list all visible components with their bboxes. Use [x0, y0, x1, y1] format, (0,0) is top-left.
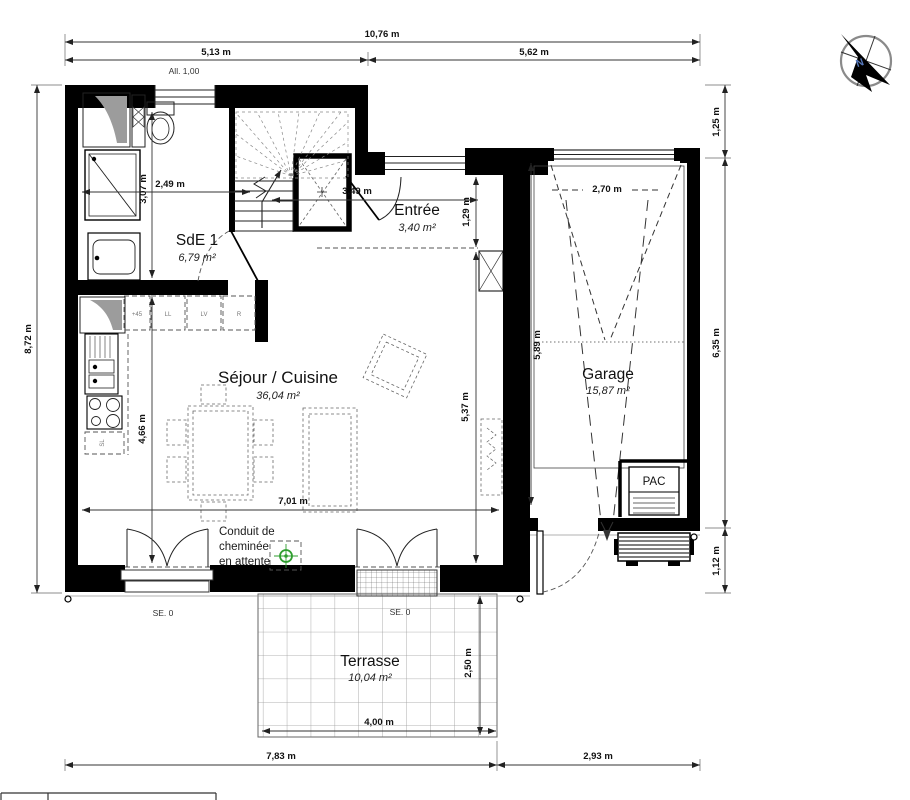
chimney-label-line2: cheminée: [219, 541, 269, 553]
dim-top-left: 5,13 m: [201, 47, 231, 58]
dim-sejour-width: 7,01 m: [278, 496, 308, 507]
garage-service-door: [537, 531, 599, 594]
dim-sde-width: 2,49 m: [155, 179, 185, 190]
dim-entree-width: 3,49 m: [342, 186, 372, 197]
dim-sejour-height: 5,37 m: [460, 392, 471, 422]
washbasin-icon: [88, 233, 140, 280]
console-unit: [481, 419, 502, 495]
french-door-terrace: [355, 529, 440, 596]
room-entree-area: 3,40 m²: [398, 222, 436, 234]
french-door-left: [121, 529, 213, 592]
dim-right-bottom: 1,12 m: [711, 546, 722, 576]
room-terrasse-name: Terrasse: [340, 653, 399, 670]
floor-plan: N 10,76 m 5,13 m 5,62 m 8,72 m 1,25 m 6,…: [0, 0, 910, 800]
pac-label: PAC: [643, 476, 666, 488]
room-sde-area: 6,79 m²: [178, 252, 216, 264]
chimney-label-line1: Conduit de: [219, 526, 275, 538]
dim-garage-depth: 5,89 m: [532, 330, 543, 360]
room-garage-area: 15,87 m²: [586, 385, 630, 397]
staircase: [234, 112, 348, 232]
room-terrasse-area: 10,04 m²: [348, 672, 392, 684]
legend-table-fragment: [1, 793, 216, 800]
room-sejour-name: Séjour / Cuisine: [218, 368, 338, 387]
kitchen-unit-5-label: SL: [100, 439, 106, 447]
duct-shaft: [479, 251, 503, 291]
room-sde-name: SdE 1: [176, 232, 218, 249]
threshold-terrace-label: SE. 0: [390, 607, 411, 617]
chimney-label-line3: en attente: [219, 556, 270, 568]
dining-table: [167, 385, 273, 521]
toilet-icon: [147, 102, 174, 144]
dim-top-total: 10,76 m: [365, 29, 400, 40]
armchair: [363, 334, 427, 398]
entry-window: [385, 152, 465, 175]
kitchen-unit-1-label: +45: [132, 312, 143, 318]
threshold-left-label: SE. 0: [153, 608, 174, 618]
room-entree-name: Entrée: [394, 202, 440, 219]
garage-sectional-door: [548, 148, 680, 161]
dim-terrasse-depth: 2,50 m: [463, 648, 474, 678]
room-garage-name: Garage: [582, 366, 634, 383]
kitchen-unit-3-label: LV: [201, 312, 208, 318]
dim-terrasse-width: 4,00 m: [364, 717, 394, 728]
walls: [65, 85, 700, 596]
kitchen-unit-2-label: LL: [165, 312, 172, 318]
dim-right-top: 1,25 m: [711, 107, 722, 137]
heat-pump-outdoor-unit: [614, 533, 694, 566]
dim-right-mid: 6,35 m: [711, 328, 722, 358]
entry-door: [346, 176, 401, 220]
north-arrow: N: [841, 34, 891, 92]
top-window: [155, 85, 215, 108]
dim-garage-door-width: 2,70 m: [592, 184, 622, 195]
dim-top-right: 5,62 m: [519, 47, 549, 58]
kitchen-island: [303, 408, 357, 512]
dim-kitchen-height: 4,66 m: [137, 414, 148, 444]
dim-left-total: 8,72 m: [23, 324, 34, 354]
window-sill-label: All. 1,00: [169, 66, 200, 76]
dim-sde-height: 3,07 m: [138, 174, 149, 204]
floor-plan-drawing: N 10,76 m 5,13 m 5,62 m 8,72 m 1,25 m 6,…: [0, 0, 910, 800]
dim-bottom-right: 2,93 m: [583, 751, 613, 762]
room-sejour-area: 36,04 m²: [256, 390, 300, 402]
dim-entree-depth: 1,29 m: [461, 197, 472, 227]
kitchen-unit-4-label: R: [237, 312, 242, 318]
dim-bottom-left: 7,83 m: [266, 751, 296, 762]
heat-pump-unit: [620, 461, 688, 517]
shower-icon: [85, 150, 140, 220]
